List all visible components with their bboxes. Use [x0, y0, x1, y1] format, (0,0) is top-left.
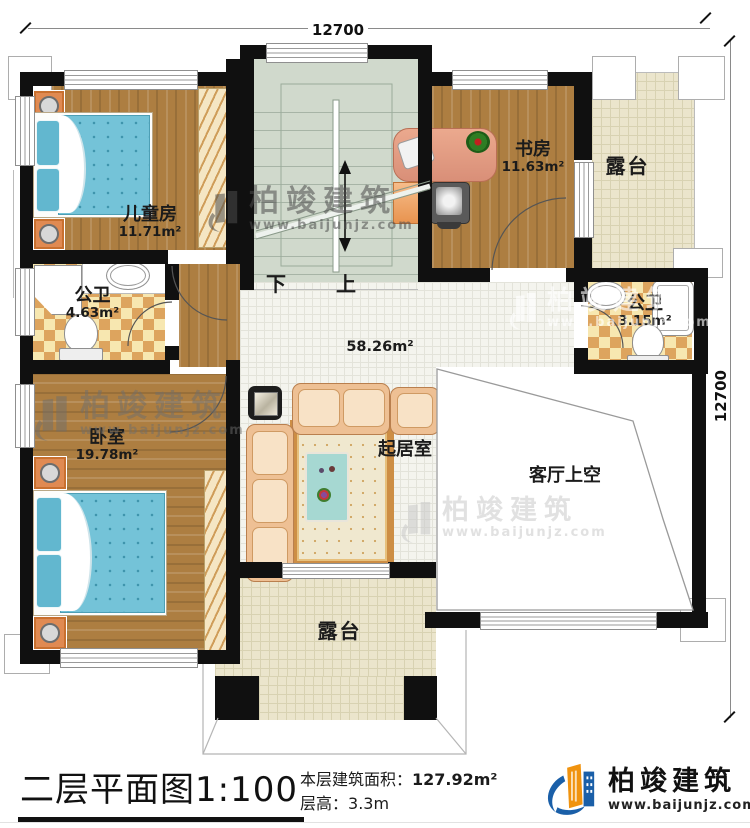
wall: [226, 59, 254, 264]
room-label-void: 客厅上空: [515, 466, 615, 486]
monitor-stand: [437, 222, 461, 229]
computer-screen: [436, 187, 462, 215]
room-label-bath-left: 公卫4.63m²: [40, 286, 145, 321]
brand-url: www.baijunjz.com: [608, 798, 750, 813]
nightstand: [33, 218, 65, 250]
wall: [388, 562, 436, 578]
pillow: [36, 120, 60, 166]
sofa-cushion: [252, 479, 288, 523]
window: [15, 96, 35, 166]
hall-area-value: 58.26m²: [340, 340, 420, 356]
stair-up-label: 上: [336, 268, 356, 297]
pillow: [36, 554, 62, 608]
pillow: [36, 497, 62, 552]
wall: [165, 346, 179, 360]
plan-stats: 本层建筑面积：127.92m² 层高：3.3m: [300, 768, 497, 816]
wall: [418, 45, 432, 282]
pillow: [36, 168, 60, 212]
terrace-sliding-door: [282, 563, 390, 579]
room-label-children: 儿童房11.71m²: [95, 205, 205, 240]
vestibule-floor: [179, 264, 240, 367]
pillar: [678, 56, 725, 100]
wall: [20, 250, 168, 264]
window: [15, 384, 35, 448]
terrace-right-edge: [694, 72, 695, 268]
floor-height-row: 层高：3.3m: [300, 792, 497, 816]
plan-title: 二层平面图1:100: [18, 762, 304, 822]
sofa-armchair: [390, 387, 440, 435]
wall: [574, 282, 588, 302]
nightstand: [33, 616, 67, 650]
wall: [655, 612, 708, 628]
sofa-cushion: [298, 389, 340, 427]
stair-landing: [254, 59, 418, 111]
table-decor: [329, 466, 335, 472]
sofa-cushion: [343, 389, 385, 427]
wall: [418, 268, 490, 282]
room-label-terrace-bottom: 露台: [297, 620, 382, 642]
window: [60, 648, 198, 668]
terrace-bottom-floor-edge: [259, 676, 404, 720]
sofa-cushion: [252, 431, 288, 475]
window: [452, 70, 548, 90]
dimension-tick: [699, 12, 711, 24]
wall: [574, 268, 708, 282]
floor-area-row: 本层建筑面积：127.92m²: [300, 768, 497, 792]
window: [266, 43, 368, 63]
dimension-top: 12700: [300, 20, 376, 39]
void-railing-window: [480, 612, 657, 630]
wall-pillar: [215, 676, 259, 720]
room-label-study: 书房11.63m²: [478, 140, 588, 175]
brand-block: 柏竣建筑 www.baijunjz.com: [542, 760, 750, 820]
wall: [692, 374, 706, 628]
coffee-table: [305, 452, 349, 522]
sofa-top: [292, 383, 390, 435]
room-label-bedroom: 卧室19.78m²: [52, 428, 162, 463]
sofa-left: [246, 424, 294, 582]
plan-scale: 1:100: [195, 770, 298, 810]
room-label-bath-right: 公卫3.15m²: [595, 294, 695, 329]
floor-plan-page: 儿童房11.71m² 书房11.63m² 露台 公卫4.63m² 公卫3.15m…: [0, 0, 750, 828]
wall: [226, 374, 240, 664]
brand-logo-icon: [542, 760, 600, 820]
wall: [425, 612, 480, 628]
wall: [165, 264, 179, 300]
plan-title-text: 二层平面图: [20, 770, 195, 810]
room-label-terrace-top: 露台: [585, 155, 670, 177]
table-decor: [319, 468, 324, 473]
window: [64, 70, 198, 90]
wall: [574, 238, 592, 268]
wall: [240, 264, 254, 290]
wall-pillar: [404, 676, 437, 720]
page-bottom-rule: [0, 822, 750, 823]
wall: [20, 360, 170, 374]
pillar: [592, 56, 636, 100]
window: [15, 268, 35, 336]
sofa-cushion: [397, 393, 433, 428]
dimension-line-right: [730, 40, 731, 718]
stair-down-label: 下: [266, 268, 286, 297]
wall: [574, 360, 708, 374]
brand-name: 柏竣建筑: [608, 768, 750, 795]
left-eave-line: [13, 170, 14, 298]
room-label-hall: 起居室: [355, 440, 455, 460]
corner-tv-screen: [254, 392, 278, 416]
table-flowers: [317, 488, 331, 502]
wall: [240, 562, 282, 578]
dimension-right: 12700: [712, 366, 730, 430]
wall: [226, 360, 240, 374]
